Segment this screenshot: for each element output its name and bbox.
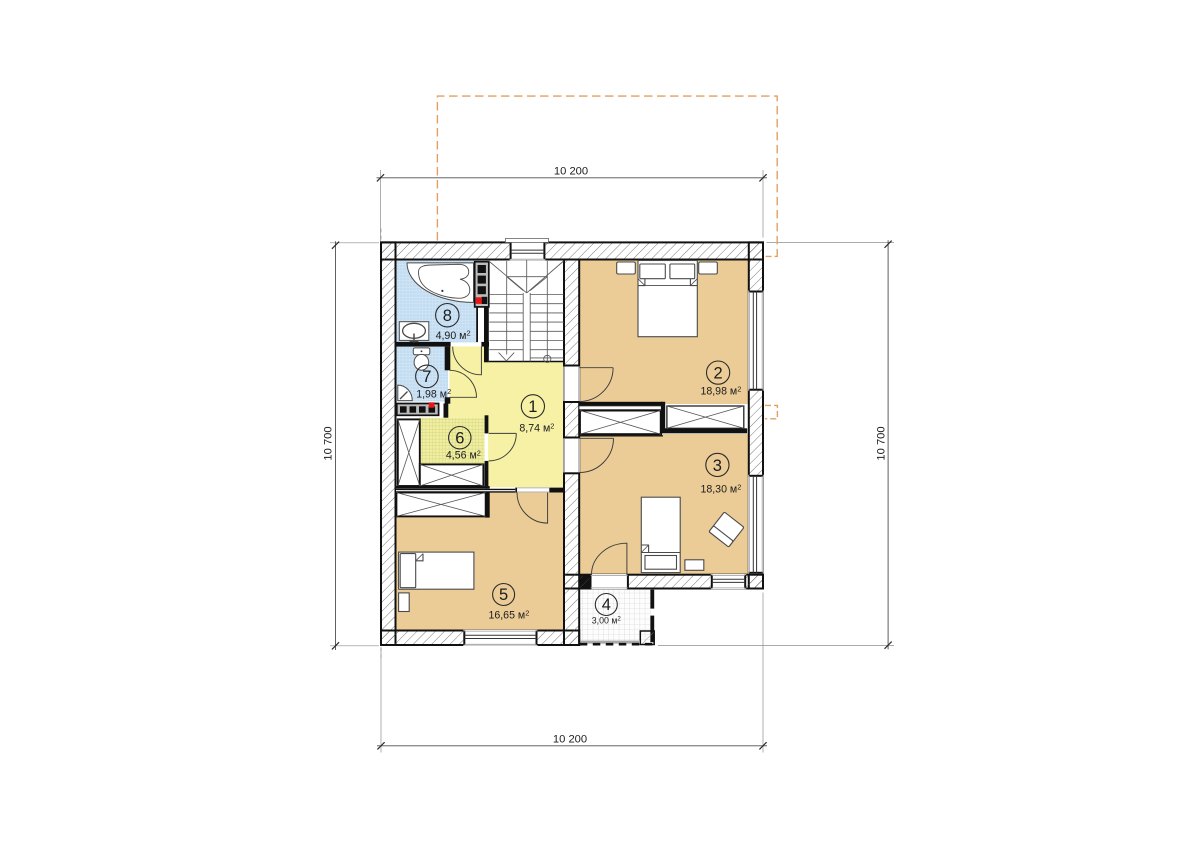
svg-text:10 700: 10 700 — [875, 426, 887, 460]
svg-text:8,74 м2: 8,74 м2 — [519, 422, 554, 435]
svg-text:10 200: 10 200 — [553, 733, 587, 745]
svg-text:4,56 м2: 4,56 м2 — [446, 449, 481, 462]
svg-text:1: 1 — [528, 398, 537, 416]
svg-text:3,00 м2: 3,00 м2 — [592, 615, 622, 625]
svg-text:6: 6 — [455, 430, 464, 448]
svg-text:1,98 м2: 1,98 м2 — [416, 387, 451, 400]
svg-text:18,98 м2: 18,98 м2 — [700, 385, 741, 398]
svg-text:4: 4 — [602, 596, 611, 614]
svg-text:3: 3 — [713, 457, 722, 475]
svg-text:10 200: 10 200 — [554, 165, 588, 177]
svg-text:5: 5 — [499, 586, 508, 604]
svg-text:16,65 м2: 16,65 м2 — [488, 609, 529, 622]
svg-text:10 700: 10 700 — [323, 426, 335, 460]
svg-text:18,30 м2: 18,30 м2 — [700, 483, 741, 496]
svg-text:7: 7 — [422, 368, 431, 386]
svg-text:4,90 м2: 4,90 м2 — [436, 329, 471, 342]
svg-text:2: 2 — [714, 365, 723, 383]
svg-text:8: 8 — [443, 307, 452, 325]
